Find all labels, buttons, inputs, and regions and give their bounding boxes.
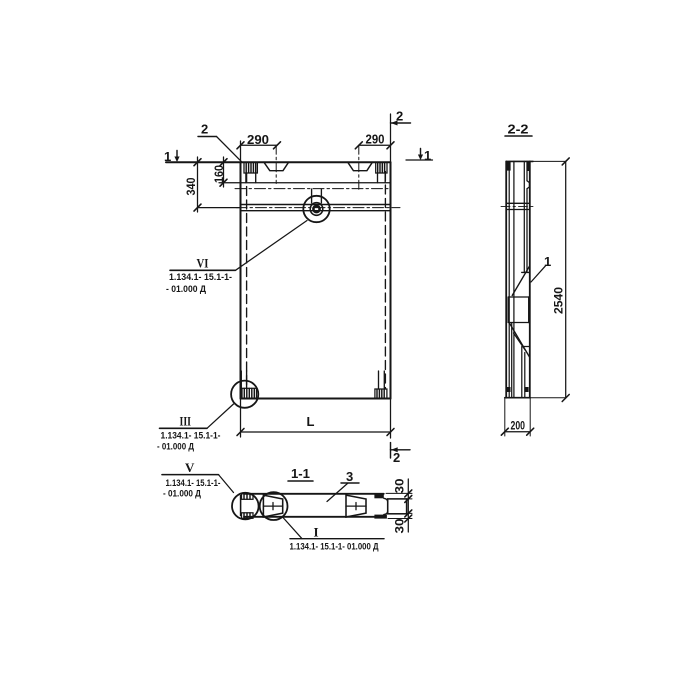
- svg-text:340: 340: [184, 177, 198, 195]
- svg-text:1-1: 1-1: [291, 466, 310, 481]
- svg-text:- 01.000 Д: - 01.000 Д: [163, 489, 201, 500]
- svg-text:2540: 2540: [552, 287, 566, 314]
- svg-text:2: 2: [393, 450, 400, 465]
- svg-text:290: 290: [366, 132, 385, 147]
- svg-text:V: V: [185, 460, 195, 475]
- svg-text:- 01.000 Д: - 01.000 Д: [166, 284, 206, 295]
- svg-text:2: 2: [201, 122, 208, 137]
- svg-text:I: I: [314, 525, 319, 540]
- svg-text:1.134.1- 15.1-1-: 1.134.1- 15.1-1-: [166, 478, 221, 489]
- svg-text:1: 1: [544, 254, 551, 269]
- svg-text:L: L: [307, 414, 315, 429]
- svg-text:200: 200: [511, 419, 526, 433]
- svg-text:3: 3: [346, 469, 353, 484]
- svg-text:III: III: [180, 414, 192, 429]
- svg-text:290: 290: [247, 132, 269, 147]
- svg-text:2-2: 2-2: [508, 122, 529, 137]
- svg-text:1: 1: [424, 148, 431, 163]
- svg-text:30: 30: [393, 518, 407, 533]
- svg-text:- 01.000 Д: - 01.000 Д: [157, 442, 194, 453]
- svg-text:1: 1: [164, 149, 171, 164]
- svg-text:160: 160: [212, 165, 226, 183]
- svg-text:2: 2: [396, 109, 403, 124]
- svg-text:30: 30: [393, 478, 407, 493]
- svg-text:1.134.1- 15.1-1- 01.000 Д: 1.134.1- 15.1-1- 01.000 Д: [290, 542, 379, 553]
- svg-text:1.134.1- 15.1-1-: 1.134.1- 15.1-1-: [161, 431, 221, 442]
- svg-text:VI: VI: [197, 256, 209, 271]
- svg-text:1.134.1- 15.1-1-: 1.134.1- 15.1-1-: [169, 272, 232, 283]
